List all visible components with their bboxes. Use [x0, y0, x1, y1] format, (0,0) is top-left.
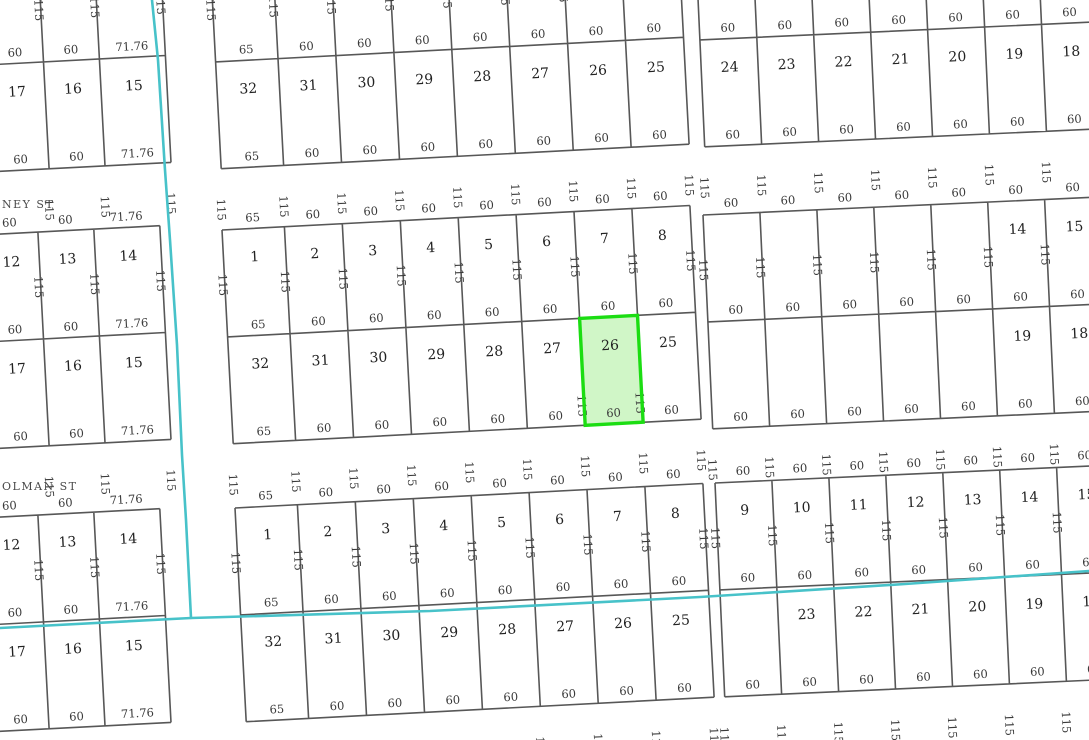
frontage-dimension-label: 60 — [666, 467, 681, 482]
depth-dimension-label: 115 — [879, 519, 894, 542]
lot-number-label: 22 — [854, 604, 873, 621]
frontage-dimension-label: 65 — [258, 488, 273, 503]
depth-dimension-label: 115 — [226, 473, 241, 496]
frontage-dimension-label: 60 — [548, 408, 563, 423]
lot-number-label: 21 — [891, 51, 910, 68]
frontage-dimension-label: 60 — [318, 485, 333, 500]
depth-dimension-label: 115 — [591, 733, 606, 740]
lot-number-label: 31 — [311, 353, 330, 370]
frontage-dimension-label: 65 — [244, 149, 259, 164]
lot-number-label: 16 — [64, 358, 83, 375]
lot-number-label: 8 — [671, 506, 681, 522]
lot-number-label: 4 — [439, 518, 449, 534]
depth-dimension-label: 115 — [324, 0, 339, 15]
depth-dimension-label: 115 — [705, 459, 720, 482]
depth-dimension-label: 115 — [1050, 511, 1065, 534]
depth-dimension-label: 115 — [31, 559, 46, 582]
depth-dimension-label: 115 — [520, 458, 535, 481]
frontage-dimension-label: 60 — [555, 580, 570, 595]
frontage-dimension-label: 60 — [671, 573, 686, 588]
depth-dimension-label: 115 — [993, 514, 1008, 537]
depth-dimension-label: 115 — [811, 171, 826, 194]
frontage-dimension-label: 60 — [1008, 182, 1023, 197]
lot-number-label: 12 — [2, 254, 21, 271]
frontage-dimension-label: 60 — [658, 295, 673, 310]
frontage-dimension-label: 60 — [588, 24, 603, 39]
frontage-dimension-label: 60 — [69, 426, 84, 441]
frontage-dimension-label: 60 — [653, 189, 668, 204]
depth-dimension-label: 115 — [578, 455, 593, 478]
frontage-dimension-label: 60 — [13, 152, 28, 167]
lot-number-label: 13 — [963, 492, 982, 509]
lot-number-label: 4 — [426, 240, 436, 256]
depth-dimension-label: 115 — [31, 276, 46, 299]
depth-dimension-label: 115 — [696, 259, 711, 282]
lot-number-label: 15 — [125, 638, 144, 655]
depth-dimension-label: 115 — [1059, 711, 1074, 734]
frontage-dimension-label: 60 — [316, 421, 331, 436]
lot-number-label: 9 — [740, 502, 750, 518]
frontage-dimension-label: 60 — [415, 33, 430, 48]
frontage-dimension-label: 60 — [1005, 7, 1020, 22]
depth-dimension-label: 115 — [936, 516, 951, 539]
frontage-dimension-label: 60 — [594, 130, 609, 145]
lot-number-label: 16 — [64, 81, 83, 98]
depth-dimension-label: 115 — [228, 552, 243, 575]
depth-dimension-label: 115 — [87, 556, 102, 579]
frontage-dimension-label: 60 — [1030, 664, 1045, 679]
frontage-dimension-label: 71.76 — [115, 38, 149, 54]
frontage-dimension-label: 60 — [953, 117, 968, 132]
frontage-dimension-label: 60 — [362, 143, 377, 158]
frontage-dimension-label: 60 — [1013, 289, 1028, 304]
depth-dimension-label: 115 — [464, 539, 479, 562]
lot-number-label: 32 — [264, 634, 283, 651]
frontage-dimension-label: 60 — [1065, 180, 1080, 195]
frontage-dimension-label: 60 — [432, 414, 447, 429]
frontage-dimension-label: 60 — [374, 418, 389, 433]
depth-dimension-label: 115 — [925, 166, 940, 189]
depth-dimension-label: 115 — [1002, 714, 1017, 737]
depth-dimension-label: 115 — [638, 530, 653, 553]
frontage-dimension-label: 60 — [387, 696, 402, 711]
depth-dimension-label: 115 — [0, 478, 1, 501]
depth-dimension-label: 115 — [574, 394, 589, 417]
depth-dimension-label: 115 — [98, 473, 113, 496]
lot-number-label: 27 — [531, 65, 550, 82]
plat-map-viewport: 3231302928272625656060606060606065606060… — [0, 0, 1089, 740]
frontage-dimension-label: 65 — [239, 42, 254, 57]
lot-number-label: 27 — [543, 340, 562, 357]
frontage-dimension-label: 65 — [245, 210, 260, 225]
frontage-dimension-label: 60 — [445, 692, 460, 707]
lot-number-label: 28 — [473, 68, 492, 85]
frontage-dimension-label: 60 — [63, 319, 78, 334]
frontage-dimension-label: 60 — [677, 680, 692, 695]
lot-number-label: 8 — [658, 228, 668, 244]
frontage-dimension-label: 60 — [777, 18, 792, 33]
frontage-dimension-label: 60 — [790, 407, 805, 422]
frontage-dimension-label: 60 — [725, 127, 740, 142]
depth-dimension-label: 115 — [810, 254, 825, 277]
lot-number-label: 5 — [484, 237, 494, 253]
frontage-dimension-label: 60 — [1075, 394, 1089, 409]
frontage-dimension-label: 60 — [13, 712, 28, 727]
lot-number-label: 15 — [1077, 487, 1089, 504]
lot-number-label: 29 — [427, 346, 446, 363]
frontage-dimension-label: 60 — [311, 314, 326, 329]
frontage-dimension-label: 60 — [503, 689, 518, 704]
frontage-dimension-label: 60 — [733, 409, 748, 424]
depth-dimension-label: 115 — [708, 527, 723, 550]
lot-number-label: 30 — [382, 628, 401, 645]
depth-dimension-label: 115 — [407, 542, 422, 565]
frontage-dimension-label: 60 — [916, 669, 931, 684]
frontage-dimension-label: 60 — [376, 482, 391, 497]
frontage-dimension-label: 60 — [859, 672, 874, 687]
lot-number-label: 3 — [368, 243, 378, 259]
depth-dimension-label: 115 — [346, 467, 361, 490]
frontage-dimension-label: 60 — [646, 20, 661, 35]
depth-dimension-label: 115 — [945, 716, 960, 739]
frontage-dimension-label: 60 — [363, 204, 378, 219]
depth-dimension-label: 115 — [876, 451, 891, 474]
lot-number-label: 24 — [720, 59, 739, 76]
frontage-dimension-label: 60 — [720, 20, 735, 35]
depth-dimension-label: 115 — [1038, 243, 1053, 266]
lot-number-label: 21 — [911, 601, 930, 618]
lot-number-label: 31 — [299, 78, 318, 95]
frontage-dimension-label: 60 — [595, 192, 610, 207]
frontage-dimension-label: 60 — [1025, 557, 1040, 572]
frontage-dimension-label: 60 — [530, 27, 545, 42]
frontage-dimension-label: 60 — [652, 127, 667, 142]
frontage-dimension-label: 60 — [849, 458, 864, 473]
depth-dimension-label: 115 — [394, 264, 409, 287]
depth-dimension-label: 115 — [580, 533, 595, 556]
depth-dimension-label: 115 — [522, 536, 537, 559]
frontage-dimension-label: 60 — [1070, 287, 1085, 302]
frontage-dimension-label: 60 — [324, 592, 339, 607]
lot-number-label: 32 — [251, 356, 270, 373]
depth-dimension-label: 115 — [624, 177, 639, 200]
frontage-dimension-label: 60 — [69, 709, 84, 724]
depth-dimension-label: 115 — [1047, 443, 1062, 466]
frontage-dimension-label: 60 — [536, 133, 551, 148]
lot-number-label: 14 — [1008, 221, 1027, 238]
lot-number-label: 14 — [119, 248, 138, 265]
lot-number-label: 25 — [647, 59, 666, 76]
depth-dimension-label: 115 — [404, 464, 419, 487]
frontage-dimension-label: 60 — [542, 302, 557, 317]
frontage-dimension-label: 60 — [956, 292, 971, 307]
lot-number-label: 11 — [849, 497, 868, 514]
depth-dimension-label: 115 — [392, 189, 407, 212]
lot-number-label: 30 — [369, 350, 388, 367]
frontage-dimension-label: 60 — [1018, 396, 1033, 411]
depth-dimension-label: 115 — [288, 470, 303, 493]
frontage-dimension-label: 60 — [834, 15, 849, 30]
depth-dimension-label: 115 — [87, 273, 102, 296]
lot-number-label: 19 — [1025, 596, 1044, 613]
frontage-dimension-label: 60 — [735, 463, 750, 478]
lot-number-label: 19 — [1013, 328, 1032, 345]
depth-dimension-label: 115 — [636, 452, 651, 475]
frontage-dimension-label: 60 — [837, 190, 852, 205]
frontage-dimension-label: 60 — [7, 45, 22, 60]
frontage-dimension-label: 60 — [63, 42, 78, 57]
lot-number-label: 31 — [324, 631, 343, 648]
lot-number-label: 18 — [1070, 326, 1089, 343]
frontage-dimension-label: 60 — [497, 583, 512, 598]
lot-number-label: 26 — [601, 337, 620, 354]
lot-number-label: 16 — [64, 641, 83, 658]
frontage-dimension-label: 60 — [2, 498, 17, 513]
frontage-dimension-label: 60 — [492, 476, 507, 491]
frontage-dimension-label: 60 — [58, 495, 73, 510]
frontage-dimension-label: 60 — [382, 589, 397, 604]
lot-number-label: 22 — [834, 54, 853, 71]
frontage-dimension-label: 71.76 — [109, 492, 143, 508]
lot-number-label: 1 — [250, 249, 260, 265]
frontage-dimension-label: 60 — [904, 401, 919, 416]
depth-dimension-label: 115 — [153, 269, 168, 292]
depth-dimension-label: 115 — [754, 174, 769, 197]
frontage-dimension-label: 60 — [948, 10, 963, 25]
lot-number-label: 20 — [948, 49, 967, 66]
frontage-dimension-label: 71.76 — [115, 598, 149, 614]
frontage-dimension-label: 60 — [973, 667, 988, 682]
depth-dimension-label: 115 — [819, 453, 834, 476]
frontage-dimension-label: 60 — [728, 302, 743, 317]
frontage-dimension-label: 60 — [421, 201, 436, 216]
lot-number-label: 2 — [310, 246, 320, 262]
depth-dimension-label: 115 — [451, 261, 466, 284]
depth-dimension-label: 115 — [774, 724, 789, 740]
depth-dimension-label: 115 — [439, 0, 454, 9]
frontage-dimension-label: 60 — [63, 602, 78, 617]
frontage-dimension-label: 60 — [1010, 114, 1025, 129]
frontage-dimension-label: 60 — [608, 470, 623, 485]
frontage-dimension-label: 71.76 — [121, 422, 155, 438]
parcel-block-top-right-lot-18[interactable] — [1042, 22, 1089, 132]
lot-number-label: 23 — [797, 607, 816, 624]
frontage-dimension-label: 60 — [740, 570, 755, 585]
depth-dimension-label: 115 — [0, 201, 1, 224]
lot-number-label: 23 — [777, 57, 796, 74]
lot-number-label: 26 — [589, 62, 608, 79]
frontage-dimension-label: 60 — [484, 305, 499, 320]
frontage-dimension-label: 71.76 — [121, 145, 155, 161]
frontage-dimension-label: 60 — [420, 139, 435, 154]
depth-dimension-label: 115 — [762, 456, 777, 479]
lot-number-label: 29 — [415, 71, 434, 88]
frontage-dimension-label: 60 — [600, 299, 615, 314]
frontage-dimension-label: 65 — [269, 702, 284, 717]
lot-number-label: 1 — [263, 527, 273, 543]
frontage-dimension-label: 60 — [745, 677, 760, 692]
frontage-dimension-label: 60 — [58, 212, 73, 227]
frontage-dimension-label: 60 — [490, 411, 505, 426]
depth-dimension-label: 115 — [31, 0, 46, 21]
frontage-dimension-label: 60 — [951, 185, 966, 200]
depth-dimension-label: 115 — [215, 274, 230, 297]
frontage-dimension-label: 60 — [440, 586, 455, 601]
depth-dimension-label: 115 — [753, 256, 768, 279]
frontage-dimension-label: 60 — [847, 404, 862, 419]
depth-dimension-label: 115 — [982, 164, 997, 187]
lot-number-label: 17 — [8, 644, 27, 661]
lot-number-label: 28 — [485, 343, 504, 360]
depth-dimension-label: 115 — [508, 183, 523, 206]
frontage-dimension-label: 60 — [69, 149, 84, 164]
lot-number-label: 6 — [542, 234, 552, 250]
frontage-dimension-label: 60 — [1077, 448, 1089, 463]
frontage-dimension-label: 60 — [369, 311, 384, 326]
depth-dimension-label: 115 — [867, 251, 882, 274]
lot-number-label: 2 — [323, 524, 333, 540]
frontage-dimension-label: 60 — [550, 473, 565, 488]
depth-dimension-label: 115 — [382, 0, 397, 12]
depth-dimension-label: 115 — [533, 736, 548, 740]
lot-number-label: 13 — [58, 251, 77, 268]
lot-number-label: 25 — [672, 612, 691, 629]
frontage-dimension-label: 60 — [792, 461, 807, 476]
depth-dimension-label: 115 — [450, 186, 465, 209]
depth-dimension-label: 115 — [497, 0, 512, 6]
parcel-map-canvas: 3231302928272625656060606060606065606060… — [0, 0, 1089, 740]
frontage-dimension-label: 60 — [1020, 450, 1035, 465]
frontage-dimension-label: 65 — [264, 595, 279, 610]
depth-dimension-label: 115 — [822, 522, 837, 545]
lot-number-label: 19 — [1005, 46, 1024, 63]
lot-number-label: 13 — [58, 534, 77, 551]
lot-number-label: 28 — [498, 621, 517, 638]
lot-number-label: 15 — [125, 355, 144, 372]
lot-number-label: 3 — [381, 521, 391, 537]
depth-dimension-label: 115 — [697, 177, 712, 200]
depth-dimension-label: 115 — [203, 0, 218, 21]
frontage-dimension-label: 60 — [329, 699, 344, 714]
frontage-dimension-label: 60 — [782, 125, 797, 140]
depth-dimension-label: 115 — [990, 446, 1005, 469]
lot-number-label: 17 — [8, 361, 27, 378]
depth-dimension-label: 115 — [717, 727, 732, 740]
frontage-dimension-label: 60 — [891, 13, 906, 28]
lot-number-label: 15 — [1065, 219, 1084, 236]
lot-number-label: 14 — [119, 531, 138, 548]
frontage-dimension-label: 60 — [968, 560, 983, 575]
depth-dimension-label: 115 — [164, 469, 179, 492]
frontage-dimension-label: 60 — [664, 402, 679, 417]
frontage-dimension-label: 60 — [839, 122, 854, 137]
lot-number-label: 32 — [239, 81, 258, 98]
frontage-dimension-label: 60 — [802, 675, 817, 690]
frontage-dimension-label: 65 — [256, 424, 271, 439]
depth-dimension-label: 115 — [462, 461, 477, 484]
frontage-dimension-label: 60 — [357, 36, 372, 51]
frontage-dimension-label: 60 — [894, 188, 909, 203]
depth-dimension-label: 115 — [981, 246, 996, 269]
frontage-dimension-label: 60 — [906, 456, 921, 471]
frontage-dimension-label: 60 — [427, 308, 442, 323]
frontage-dimension-label: 60 — [478, 136, 493, 151]
frontage-dimension-label: 60 — [896, 119, 911, 134]
lot-number-label: 15 — [125, 78, 144, 95]
depth-dimension-label: 115 — [868, 169, 883, 192]
frontage-dimension-label: 60 — [723, 195, 738, 210]
lot-number-label: 7 — [613, 509, 623, 525]
frontage-dimension-label: 65 — [251, 317, 266, 332]
lot-number-label: 20 — [968, 599, 987, 616]
frontage-dimension-label: 60 — [13, 429, 28, 444]
frontage-dimension-label: 60 — [305, 207, 320, 222]
depth-dimension-label: 115 — [278, 270, 293, 293]
depth-dimension-label: 115 — [334, 192, 349, 215]
lot-number-label: 29 — [440, 624, 459, 641]
depth-dimension-label: 115 — [682, 174, 697, 197]
lot-number-label: 26 — [614, 615, 633, 632]
frontage-dimension-label: 60 — [606, 405, 621, 420]
frontage-dimension-label: 60 — [2, 215, 17, 230]
depth-dimension-label: 115 — [683, 249, 698, 272]
lot-number-label: 14 — [1020, 489, 1039, 506]
frontage-dimension-label: 60 — [854, 565, 869, 580]
frontage-dimension-label: 71.76 — [109, 209, 143, 225]
frontage-dimension-label: 60 — [1067, 112, 1082, 127]
frontage-dimension-label: 60 — [304, 146, 319, 161]
depth-dimension-label: 115 — [924, 248, 939, 271]
lot-number-label: 18 — [1082, 594, 1089, 611]
depth-dimension-label: 115 — [276, 195, 291, 218]
depth-dimension-label: 115 — [214, 198, 229, 221]
lot-number-label: 25 — [659, 334, 678, 351]
frontage-dimension-label: 60 — [613, 577, 628, 592]
depth-dimension-label: 115 — [153, 0, 168, 15]
depth-dimension-label: 115 — [933, 448, 948, 471]
lot-number-label: 30 — [357, 75, 376, 92]
lot-number-label: 27 — [556, 618, 575, 635]
street-label-olman: OLMAN ST — [2, 480, 78, 493]
frontage-dimension-label: 60 — [899, 295, 914, 310]
lot-number-label: 6 — [555, 512, 565, 528]
frontage-dimension-label: 60 — [434, 479, 449, 494]
frontage-dimension-label: 60 — [479, 198, 494, 213]
frontage-dimension-label: 60 — [911, 563, 926, 578]
lot-number-label: 7 — [600, 231, 610, 247]
street-label-ney: NEY ST — [2, 198, 54, 211]
frontage-dimension-label: 60 — [7, 605, 22, 620]
depth-dimension-label: 115 — [1039, 161, 1054, 184]
frontage-dimension-label: 60 — [619, 683, 634, 698]
lot-number-label: 12 — [906, 495, 925, 512]
frontage-dimension-label: 60 — [961, 399, 976, 414]
depth-dimension-label: 115 — [765, 524, 780, 547]
parcel-cells — [0, 0, 1089, 732]
lot-number-label: 10 — [792, 500, 811, 517]
depth-dimension-label: 115 — [87, 0, 102, 18]
depth-dimension-label: 115 — [566, 180, 581, 203]
depth-dimension-label: 115 — [266, 0, 281, 18]
lot-number-label: 12 — [2, 537, 21, 554]
frontage-dimension-label: 60 — [1082, 555, 1089, 570]
frontage-dimension-label: 60 — [1062, 5, 1077, 20]
depth-dimension-label: 115 — [509, 258, 524, 281]
frontage-dimension-label: 60 — [963, 453, 978, 468]
frontage-dimension-label: 60 — [299, 39, 314, 54]
depth-dimension-label: 115 — [291, 548, 306, 571]
frontage-dimension-label: 60 — [7, 322, 22, 337]
